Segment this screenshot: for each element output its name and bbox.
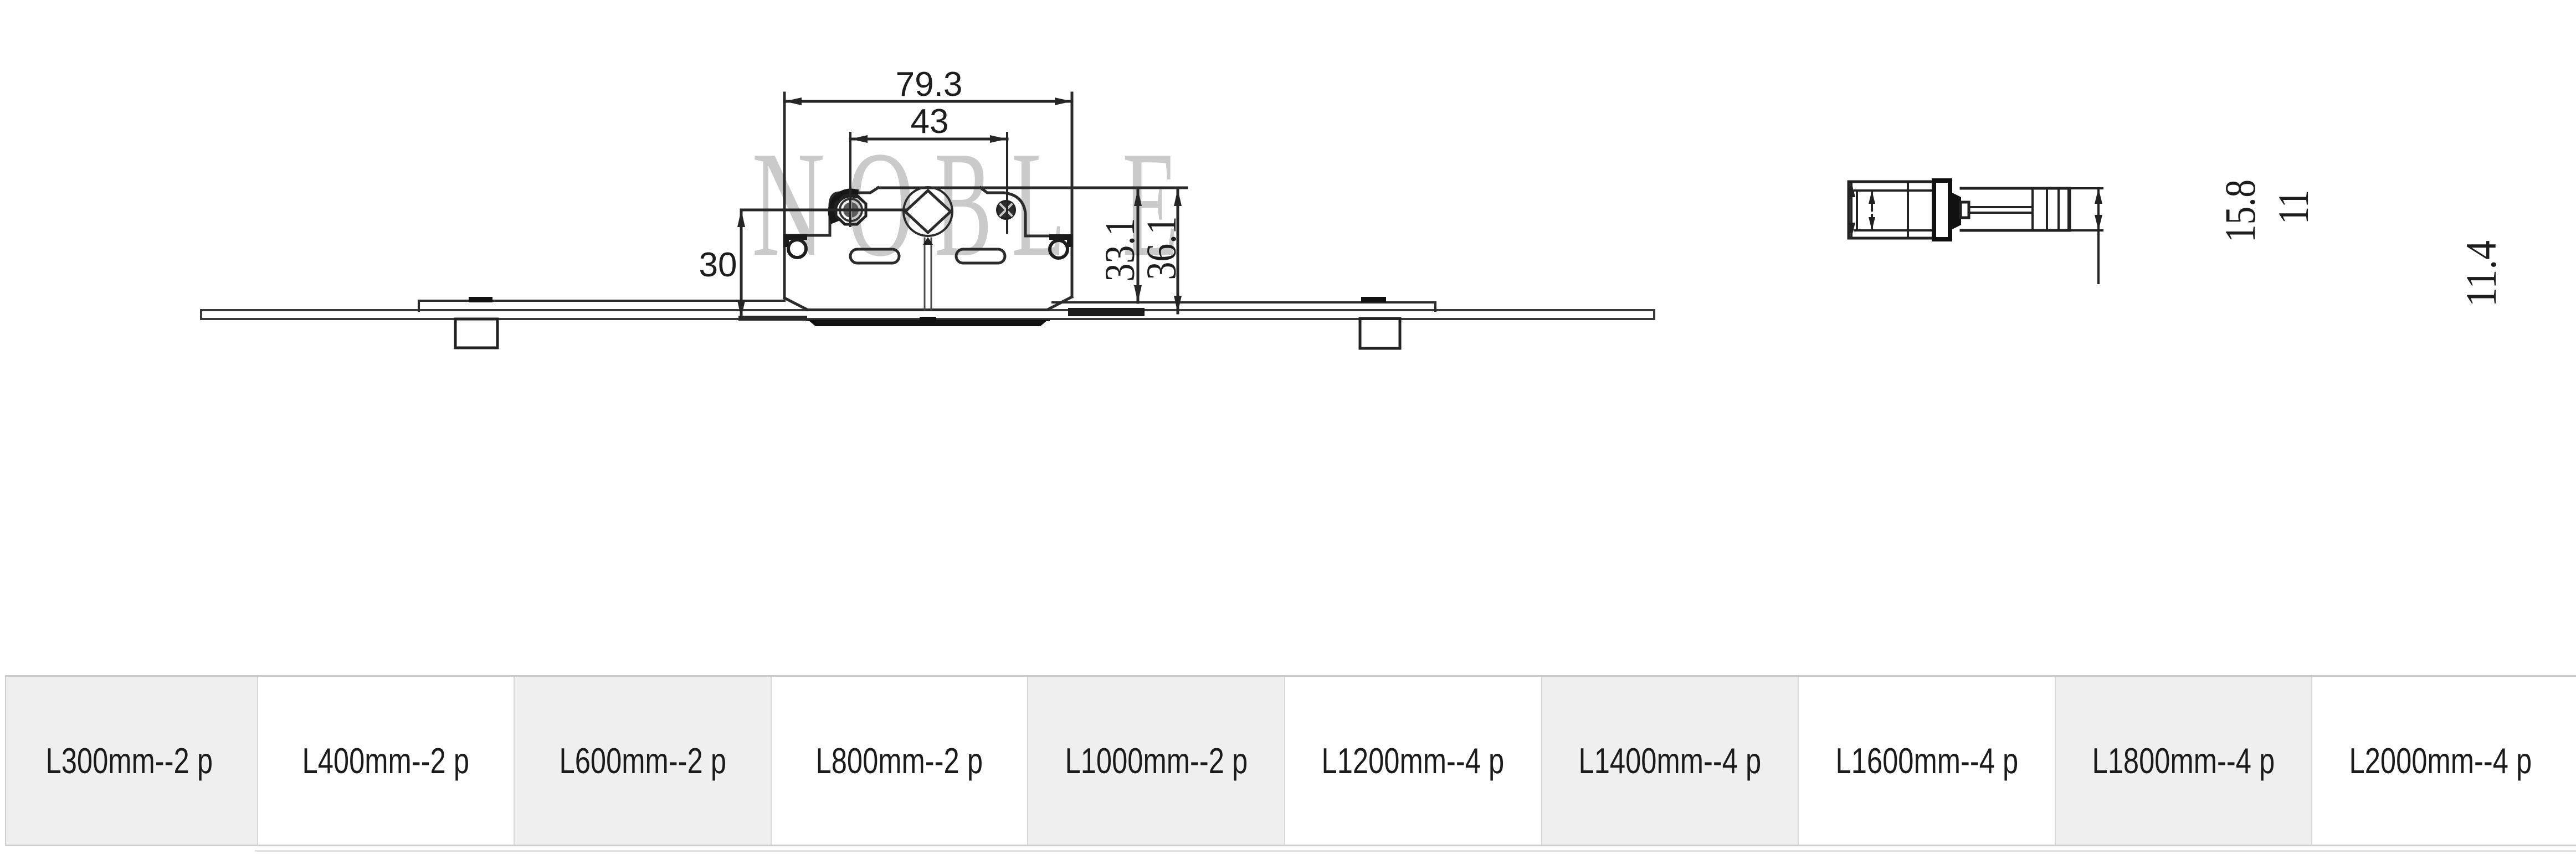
svg-text:N: N bbox=[752, 121, 825, 288]
svg-text:33.1: 33.1 bbox=[1097, 218, 1143, 282]
svg-text:36.1: 36.1 bbox=[1138, 217, 1185, 280]
svg-text:15.8: 15.8 bbox=[2216, 179, 2264, 243]
svg-text:11: 11 bbox=[2269, 190, 2317, 224]
svg-text:L: L bbox=[1012, 121, 1065, 288]
svg-text:11.4: 11.4 bbox=[2457, 240, 2505, 307]
svg-text:79.3: 79.3 bbox=[896, 65, 963, 104]
svg-text:43: 43 bbox=[911, 102, 949, 141]
svg-text:30: 30 bbox=[699, 246, 737, 284]
